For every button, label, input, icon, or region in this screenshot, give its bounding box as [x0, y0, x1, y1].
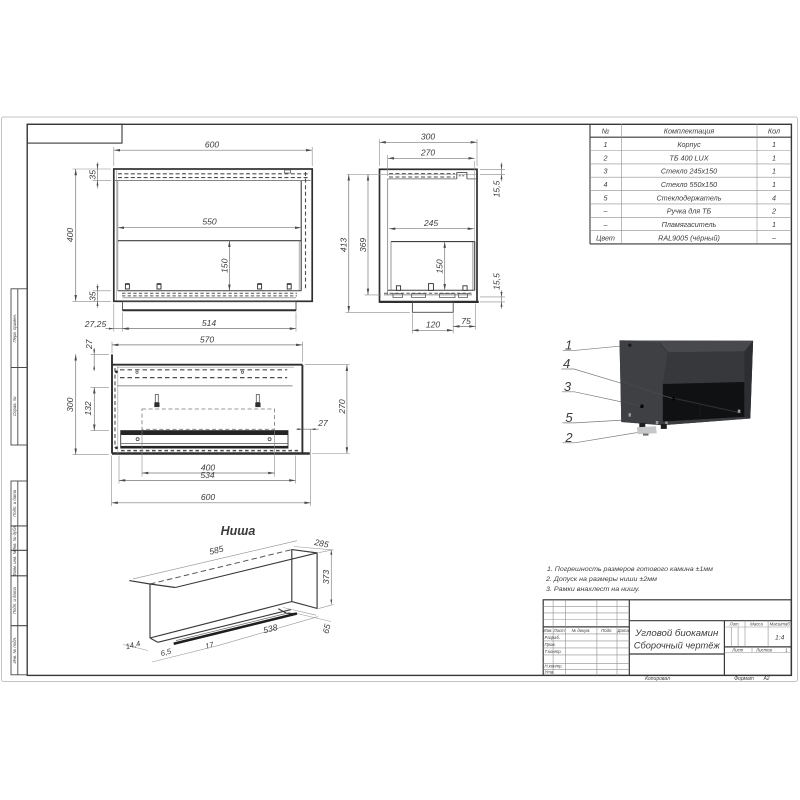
svg-text:Взам. инв. №: Взам. инв. №	[12, 549, 17, 576]
svg-text:Лит.: Лит.	[729, 621, 740, 626]
svg-text:300: 300	[421, 132, 436, 142]
svg-text:514: 514	[202, 318, 217, 328]
svg-text:373: 373	[321, 570, 331, 585]
svg-text:1: 1	[565, 337, 572, 352]
svg-text:Подп.: Подп.	[601, 628, 612, 633]
svg-text:А2: А2	[762, 676, 769, 682]
svg-text:Угловой биокамин: Угловой биокамин	[634, 628, 718, 638]
svg-text:Инв. № дубл.: Инв. № дубл.	[12, 525, 17, 551]
svg-text:120: 120	[426, 320, 441, 330]
svg-text:Корпус: Корпус	[677, 140, 701, 149]
svg-text:4: 4	[772, 193, 776, 202]
svg-text:Сборочный чертёж: Сборочный чертёж	[634, 641, 721, 651]
svg-text:Т.контр.: Т.контр.	[545, 649, 562, 654]
svg-text:Перв. примен.: Перв. примен.	[12, 314, 17, 343]
svg-text:27: 27	[317, 418, 329, 428]
svg-text:Справ. №: Справ. №	[12, 396, 17, 416]
svg-text:Пров.: Пров.	[545, 642, 556, 647]
svg-text:Формат: Формат	[734, 676, 754, 682]
svg-text:1: 1	[604, 140, 608, 149]
svg-text:35: 35	[87, 291, 97, 301]
svg-text:27,25: 27,25	[84, 319, 107, 329]
svg-text:1: 1	[772, 220, 776, 229]
svg-text:№ докум.: № докум.	[572, 628, 591, 633]
svg-text:5: 5	[565, 410, 573, 425]
svg-text:1: 1	[772, 153, 776, 162]
svg-text:Стекло 550х150: Стекло 550х150	[661, 180, 717, 189]
svg-text:Утв.: Утв.	[545, 670, 555, 675]
svg-text:Инв. № подл.: Инв. № подл.	[12, 637, 17, 664]
svg-text:3: 3	[604, 167, 608, 176]
svg-text:534: 534	[200, 470, 215, 480]
svg-text:Пламягаситель: Пламягаситель	[662, 220, 717, 229]
svg-text:Стеклодержатель: Стеклодержатель	[656, 193, 721, 202]
svg-text:369: 369	[358, 238, 368, 253]
svg-text:Лист: Лист	[553, 628, 565, 633]
svg-text:413: 413	[339, 238, 349, 253]
svg-text:1: 1	[772, 140, 776, 149]
svg-text:Подп. и дата: Подп. и дата	[12, 489, 17, 517]
svg-text:2: 2	[771, 207, 776, 216]
svg-text:Н.контр.: Н.контр.	[545, 663, 563, 668]
svg-text:Разраб.: Разраб.	[545, 635, 561, 640]
svg-text:Дата: Дата	[617, 628, 630, 633]
svg-text:Стекло 245х150: Стекло 245х150	[661, 167, 717, 176]
svg-text:2. Допуск на размеры ниши ±2мм: 2. Допуск на размеры ниши ±2мм	[545, 576, 658, 583]
svg-text:2: 2	[564, 430, 573, 445]
svg-text:Подп. и дата: Подп. и дата	[12, 587, 17, 615]
svg-text:Копировал: Копировал	[645, 676, 670, 682]
svg-text:1: 1	[772, 180, 776, 189]
svg-text:Лист: Лист	[731, 648, 743, 653]
svg-text:15,5: 15,5	[491, 273, 501, 290]
svg-text:1: 1	[772, 167, 776, 176]
svg-text:Листов: Листов	[755, 648, 772, 653]
svg-text:RAL9005 (чёрный): RAL9005 (чёрный)	[658, 233, 720, 242]
svg-text:2: 2	[603, 153, 608, 162]
svg-text:4: 4	[563, 356, 570, 371]
svg-text:Масса: Масса	[750, 621, 763, 626]
svg-text:Изм.: Изм.	[543, 628, 552, 633]
svg-text:600: 600	[201, 492, 216, 502]
svg-text:1. Погрешность размеров готово: 1. Погрешность размеров готового камина …	[547, 566, 713, 573]
svg-text:№: №	[602, 126, 610, 135]
svg-text:3. Рамки внахлест на нишу.: 3. Рамки внахлест на нишу.	[546, 586, 640, 593]
svg-text:245: 245	[423, 218, 439, 228]
svg-text:Ниша: Ниша	[221, 524, 256, 538]
svg-text:3: 3	[564, 379, 572, 394]
svg-text:27: 27	[84, 338, 94, 350]
svg-text:300: 300	[65, 397, 75, 412]
svg-text:150: 150	[435, 259, 445, 274]
svg-text:35: 35	[87, 170, 97, 180]
svg-text:Кол: Кол	[768, 126, 780, 135]
svg-text:Ручка для ТБ: Ручка для ТБ	[667, 207, 712, 216]
svg-text:4: 4	[604, 180, 608, 189]
svg-text:270: 270	[420, 148, 436, 158]
svg-text:1:4: 1:4	[775, 635, 785, 642]
svg-text:Масштаб: Масштаб	[770, 621, 791, 626]
svg-text:150: 150	[219, 258, 229, 273]
svg-text:600: 600	[205, 140, 220, 150]
svg-text:15,5: 15,5	[491, 180, 501, 197]
svg-text:Цвет: Цвет	[596, 233, 615, 242]
svg-text:75: 75	[461, 316, 471, 326]
svg-text:132: 132	[83, 401, 93, 416]
svg-text:ТБ 400 LUX: ТБ 400 LUX	[669, 153, 709, 162]
svg-text:550: 550	[202, 217, 217, 227]
svg-text:Комплектация: Комплектация	[664, 126, 715, 135]
svg-text:570: 570	[200, 334, 215, 344]
svg-text:400: 400	[65, 228, 75, 243]
svg-text:270: 270	[337, 399, 347, 415]
